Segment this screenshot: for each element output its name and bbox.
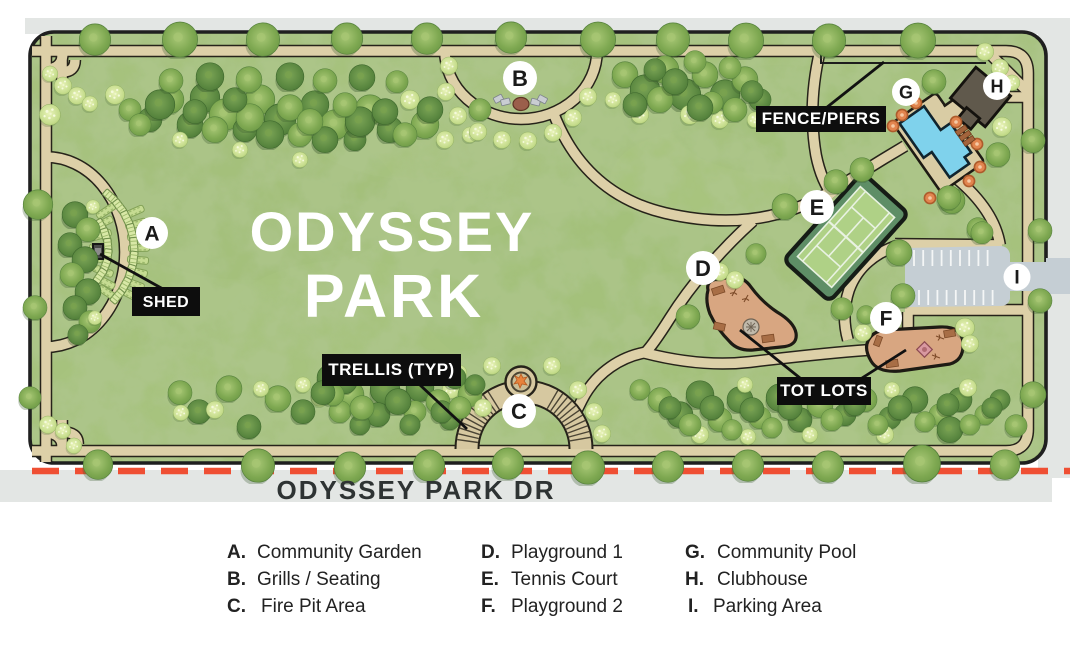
svg-text:A: A (144, 222, 159, 245)
svg-text:Clubhouse: Clubhouse (717, 569, 808, 590)
svg-text:B: B (512, 66, 528, 91)
svg-text:SHED: SHED (143, 294, 189, 311)
svg-text:G.: G. (685, 542, 705, 563)
svg-text:Playground 2: Playground 2 (511, 596, 623, 617)
svg-text:B.: B. (227, 569, 246, 590)
svg-text:ODYSSEY: ODYSSEY (250, 200, 535, 263)
svg-text:TRELLIS (TYP): TRELLIS (TYP) (328, 360, 454, 379)
svg-text:I.: I. (688, 596, 699, 617)
svg-text:G: G (899, 82, 913, 102)
svg-text:PARK: PARK (304, 262, 484, 330)
svg-text:C: C (511, 399, 527, 424)
svg-text:FENCE/PIERS: FENCE/PIERS (762, 109, 881, 128)
svg-text:Tennis Court: Tennis Court (511, 569, 618, 590)
svg-text:D: D (695, 256, 711, 281)
svg-text:Playground 1: Playground 1 (511, 542, 623, 563)
svg-text:F: F (880, 307, 893, 330)
svg-text:Parking Area: Parking Area (713, 596, 822, 617)
svg-text:Grills / Seating: Grills / Seating (257, 569, 381, 590)
svg-text:H: H (991, 76, 1004, 96)
svg-text:A.: A. (227, 542, 246, 563)
svg-text:E.: E. (481, 569, 499, 590)
svg-text:ODYSSEY PARK DR: ODYSSEY PARK DR (277, 475, 556, 505)
svg-text:Community Pool: Community Pool (717, 542, 856, 563)
svg-text:C.: C. (227, 596, 246, 617)
svg-text:Community Garden: Community Garden (257, 542, 422, 563)
svg-text:Fire Pit Area: Fire Pit Area (261, 596, 366, 617)
svg-text:I: I (1014, 268, 1019, 289)
svg-text:E: E (810, 195, 825, 220)
svg-text:D.: D. (481, 542, 500, 563)
svg-text:F.: F. (481, 596, 496, 617)
svg-text:TOT LOTS: TOT LOTS (780, 381, 868, 400)
svg-text:H.: H. (685, 569, 704, 590)
